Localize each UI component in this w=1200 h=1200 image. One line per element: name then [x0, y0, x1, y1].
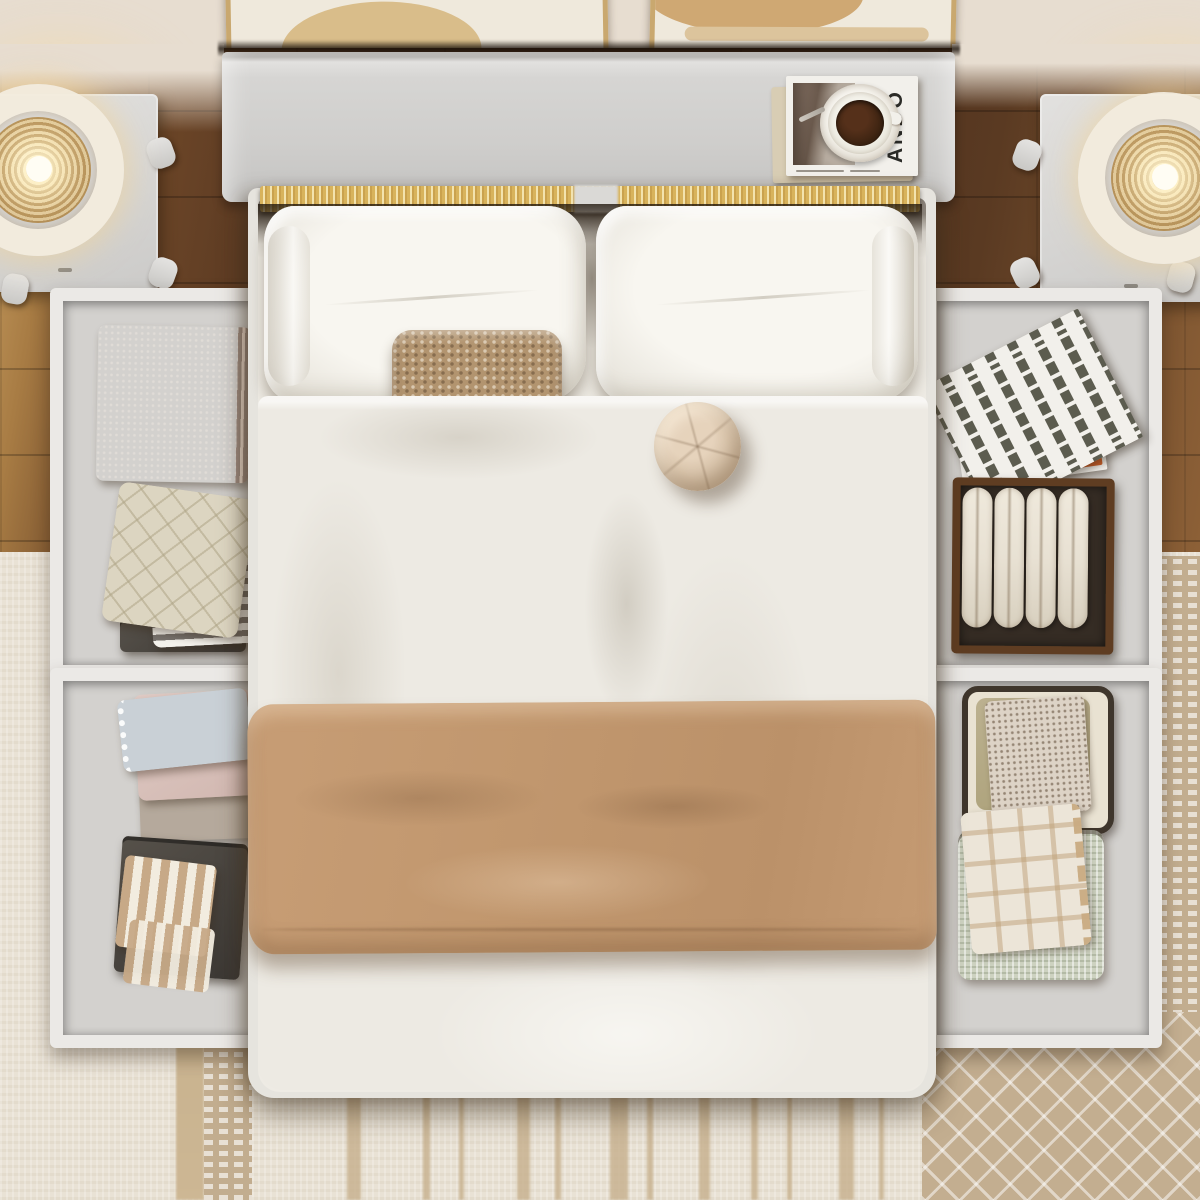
folded-cloth-blue-gray	[117, 687, 254, 772]
towel-storage-box	[951, 477, 1115, 654]
rug-stripe	[699, 1083, 710, 1200]
table-lamp-left	[0, 84, 124, 256]
bed-pillow-right	[596, 206, 918, 402]
folded-blanket-rose	[96, 325, 252, 484]
lamp-bulb	[26, 156, 52, 182]
rolled-towel	[1025, 488, 1056, 628]
rug-stripe	[839, 1083, 854, 1200]
rug-stripe	[459, 1083, 464, 1200]
rug-stripe	[347, 1083, 361, 1200]
bedroom-top-view-photo: ANDO	[0, 0, 1200, 1200]
lamp-bulb	[1152, 164, 1178, 190]
rug-stripe	[647, 1083, 653, 1200]
plaid-throw-fringed	[960, 803, 1092, 955]
rug-stripe	[517, 1083, 530, 1200]
rolled-towel	[961, 487, 992, 627]
rolled-towel	[993, 488, 1024, 628]
book-caption-line	[850, 170, 880, 172]
rug-stripe	[555, 1083, 561, 1200]
rug-stripe	[787, 1083, 792, 1200]
book-caption-line	[796, 170, 844, 172]
rug-stripe	[423, 1083, 430, 1200]
accent-pillow-round	[654, 402, 741, 491]
nightstand-left-handle	[58, 268, 72, 272]
rolled-towel	[1057, 488, 1088, 628]
camel-throw-blanket	[247, 700, 937, 955]
folded-knit-speckled	[984, 695, 1092, 818]
striped-cloth-fold	[122, 919, 215, 993]
rug-stripe	[610, 1083, 628, 1200]
coffee-surface	[836, 100, 884, 146]
folded-blanket-diamond-quilt	[101, 481, 256, 639]
table-lamp-right	[1078, 92, 1200, 264]
rug-stripe	[879, 1083, 884, 1200]
blanket-hem-stitch	[262, 928, 918, 931]
rug-stripe	[751, 1083, 758, 1200]
rug-stripes-foot-of-bed	[255, 1083, 935, 1200]
